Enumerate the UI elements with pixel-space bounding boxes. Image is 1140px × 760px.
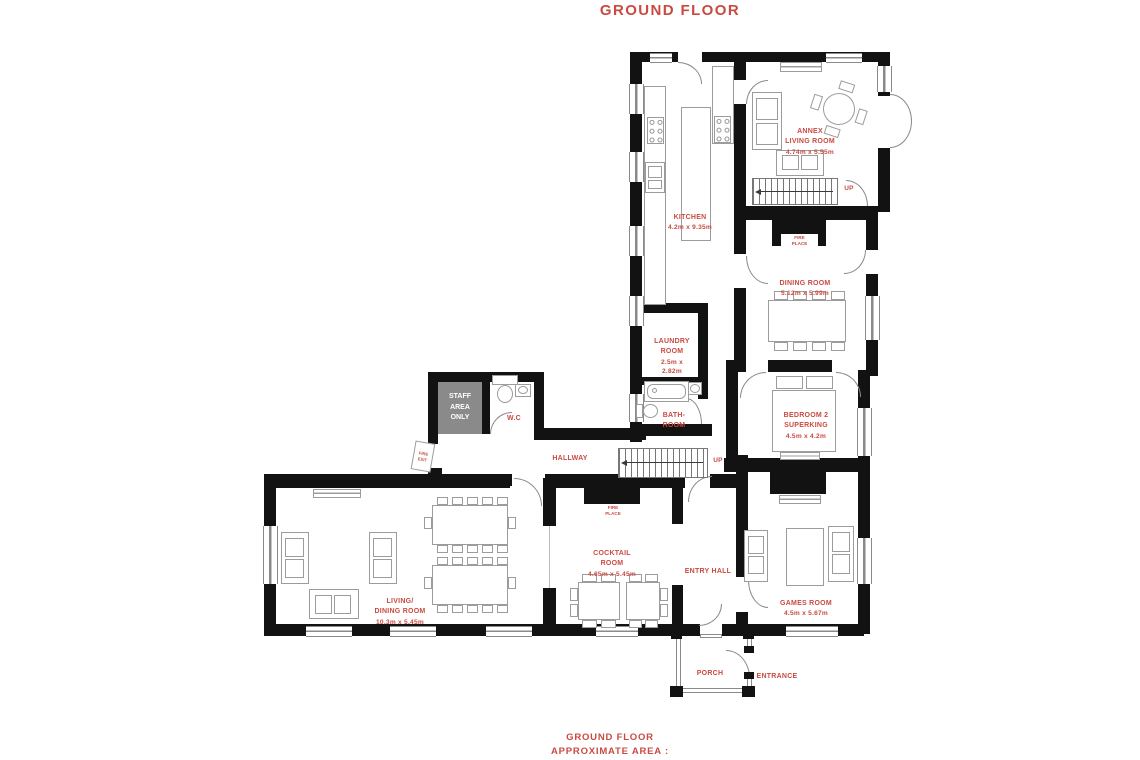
chair	[437, 545, 448, 553]
room-dims: 4.2m x 9.35m	[648, 223, 732, 233]
sofa-cushion	[334, 595, 351, 614]
sink-bowl	[518, 386, 528, 394]
room-name: LAUNDRY ROOM	[654, 338, 690, 356]
chair	[810, 94, 823, 111]
chair	[452, 557, 463, 565]
wall	[672, 585, 683, 636]
room-name: PORCH	[697, 670, 724, 677]
wall	[726, 360, 740, 372]
hob	[647, 117, 664, 144]
door-arc	[688, 476, 712, 502]
toilet-bowl	[497, 385, 513, 403]
wall	[534, 428, 646, 440]
room-name: HALLWAY	[552, 455, 587, 462]
chair	[629, 620, 642, 628]
staff-area-box: STAFF AREA ONLY	[438, 382, 482, 434]
chair	[508, 517, 516, 529]
room-name: ENTRY HALL	[685, 568, 731, 575]
chair	[482, 497, 493, 505]
stairs-arrow	[757, 191, 833, 192]
opening-line	[549, 526, 550, 588]
sofa-cushion	[832, 554, 850, 574]
room-name: ANNEX LIVING ROOM	[785, 128, 835, 146]
footer-area-note: GROUND FLOOR APPROXIMATE AREA :	[470, 731, 750, 759]
wall	[768, 360, 832, 372]
window	[857, 538, 872, 584]
wall	[428, 372, 438, 444]
chair	[424, 517, 432, 529]
sofa-cushion	[373, 559, 392, 578]
window	[306, 626, 352, 637]
door-arc	[740, 372, 766, 398]
label-entry-hall: ENTRY HALL	[666, 556, 750, 577]
room-name: W.C	[507, 415, 521, 422]
label-kitchen: KITCHEN 4.2m x 9.35m	[648, 202, 732, 243]
wall	[534, 372, 544, 434]
chair	[497, 605, 508, 613]
wall	[710, 474, 738, 488]
entrance-door-arc	[699, 604, 722, 626]
room-dims: 5.12m x 5.99m	[758, 289, 852, 299]
window	[629, 296, 644, 326]
room-name: KITCHEN	[674, 214, 707, 221]
wall	[726, 360, 738, 468]
chair	[437, 557, 448, 565]
chair	[437, 497, 448, 505]
window	[629, 84, 644, 114]
label-dining-room: DINING ROOM 5.12m x 5.99m	[758, 268, 852, 309]
chair	[570, 588, 578, 601]
label-bathroom: BATH- ROOM	[646, 400, 702, 432]
room-dims: 2.5m x 2.82m	[644, 358, 700, 378]
label-entrance: ENTRANCE	[744, 661, 810, 682]
chair	[452, 605, 463, 613]
wall	[734, 206, 746, 254]
label-cocktail-room: COCKTAIL ROOM 4.65m x 5.45m	[568, 538, 656, 590]
chair	[452, 545, 463, 553]
chair	[570, 604, 578, 617]
entrance-threshold	[700, 634, 722, 638]
wall	[866, 220, 878, 250]
room-name: COCKTAIL ROOM	[593, 550, 631, 568]
wall	[724, 458, 870, 472]
door-arc	[514, 478, 542, 506]
chair	[601, 620, 616, 628]
room-name: ENTRANCE	[757, 673, 798, 680]
room-name: DINING ROOM	[780, 280, 831, 287]
wall	[734, 206, 878, 220]
label-wc: W.C	[500, 403, 528, 424]
label-fireplace-cocktail: FIRE PLACE	[598, 505, 628, 516]
label-porch: PORCH	[682, 658, 738, 679]
games-table	[786, 528, 824, 586]
chair	[645, 620, 658, 628]
wall	[736, 612, 748, 626]
sofa-cushion	[315, 595, 332, 614]
label-laundry-room: LAUNDRY ROOM 2.5m x 2.82m	[644, 326, 700, 388]
porch-post	[670, 686, 683, 697]
chair	[467, 545, 478, 553]
window	[629, 152, 644, 182]
footer-line-1: GROUND FLOOR	[470, 731, 750, 745]
chair	[467, 605, 478, 613]
sofa-cushion	[748, 536, 764, 554]
label-bedroom-2: BEDROOM 2 SUPERKING 4.5m x 4.2m	[762, 400, 850, 452]
stairs-arrow	[623, 462, 703, 463]
hob	[714, 116, 731, 143]
pillow	[776, 376, 803, 389]
chair	[482, 557, 493, 565]
porch-post	[671, 630, 682, 639]
chair	[467, 557, 478, 565]
sink-basin	[648, 180, 662, 189]
chair	[467, 497, 478, 505]
staircase	[618, 448, 708, 478]
chair	[660, 604, 668, 617]
radiator	[780, 452, 820, 460]
label-fireplace-dining: FIRE PLACE	[781, 235, 818, 246]
window	[826, 53, 862, 63]
pillow	[806, 376, 833, 389]
chair	[508, 577, 516, 589]
wall	[734, 62, 746, 80]
chair	[774, 342, 788, 351]
radiator	[779, 495, 821, 504]
chair	[497, 557, 508, 565]
label-games-room: GAMES ROOM 4.5m x 5.67m	[758, 588, 854, 629]
chair	[482, 545, 493, 553]
sofa-cushion	[373, 538, 392, 557]
toilet-tank	[636, 404, 643, 418]
stairs-up-label: UP	[707, 456, 729, 466]
wall	[270, 474, 510, 488]
floor-plan-page: GROUND FLOOR	[0, 0, 1140, 760]
wall	[734, 104, 746, 206]
chair	[812, 342, 826, 351]
room-dims: 10.3m x 5.45m	[352, 618, 448, 628]
chair	[831, 342, 845, 351]
window	[629, 226, 644, 256]
bathtub-drain	[652, 388, 657, 393]
room-dims: 4.5m x 5.67m	[758, 609, 854, 619]
chair	[838, 80, 855, 93]
chair	[582, 620, 597, 628]
window	[650, 53, 672, 63]
porch-post	[742, 686, 755, 697]
window	[263, 526, 278, 584]
fireplace-games	[770, 472, 826, 494]
chair	[855, 108, 868, 125]
window	[865, 296, 880, 340]
chair	[660, 588, 668, 601]
porch-wall	[676, 688, 750, 693]
radiator	[780, 62, 822, 72]
room-name: BEDROOM 2 SUPERKING	[784, 412, 829, 430]
window	[486, 626, 532, 637]
label-living-dining-room: LIVING/ DINING ROOM 10.3m x 5.45m	[352, 586, 448, 638]
sofa-cushion	[285, 559, 304, 578]
room-name: LIVING/ DINING ROOM	[375, 598, 426, 616]
window	[877, 66, 892, 92]
long-table	[432, 505, 508, 545]
porch-wall	[676, 636, 681, 692]
room-name: GAMES ROOM	[780, 600, 832, 607]
footer-line-2: APPROXIMATE AREA :	[470, 745, 750, 759]
chair	[497, 545, 508, 553]
sofa-cushion	[285, 538, 304, 557]
wall	[878, 148, 890, 212]
room-dims: 4.5m x 4.2m	[762, 432, 850, 442]
wall	[543, 588, 556, 636]
porch-post	[744, 646, 754, 653]
sink-basin	[648, 166, 662, 178]
label-annex-living-room: ANNEX LIVING ROOM 4.74m x 5.55m	[768, 116, 852, 168]
wall	[672, 476, 683, 524]
chair	[497, 497, 508, 505]
page-title: GROUND FLOOR	[540, 2, 800, 19]
porch-post	[743, 630, 754, 639]
label-hallway: HALLWAY	[534, 443, 606, 464]
wall	[482, 380, 490, 434]
room-dims: 4.74m x 5.55m	[768, 148, 852, 158]
room-dims: 4.65m x 5.45m	[568, 570, 656, 580]
door-arc	[890, 121, 912, 148]
door-arc	[890, 94, 912, 121]
chair	[482, 605, 493, 613]
chair	[793, 342, 807, 351]
sofa-cushion	[832, 532, 850, 552]
room-name: BATH- ROOM	[663, 412, 686, 430]
stairs-up-label: UP	[838, 184, 860, 194]
sofa-cushion	[748, 556, 764, 574]
fireplace-cocktail	[584, 488, 640, 504]
wall	[543, 478, 556, 526]
chair	[452, 497, 463, 505]
door-arc	[678, 62, 702, 84]
window	[857, 408, 872, 456]
radiator	[313, 489, 361, 498]
